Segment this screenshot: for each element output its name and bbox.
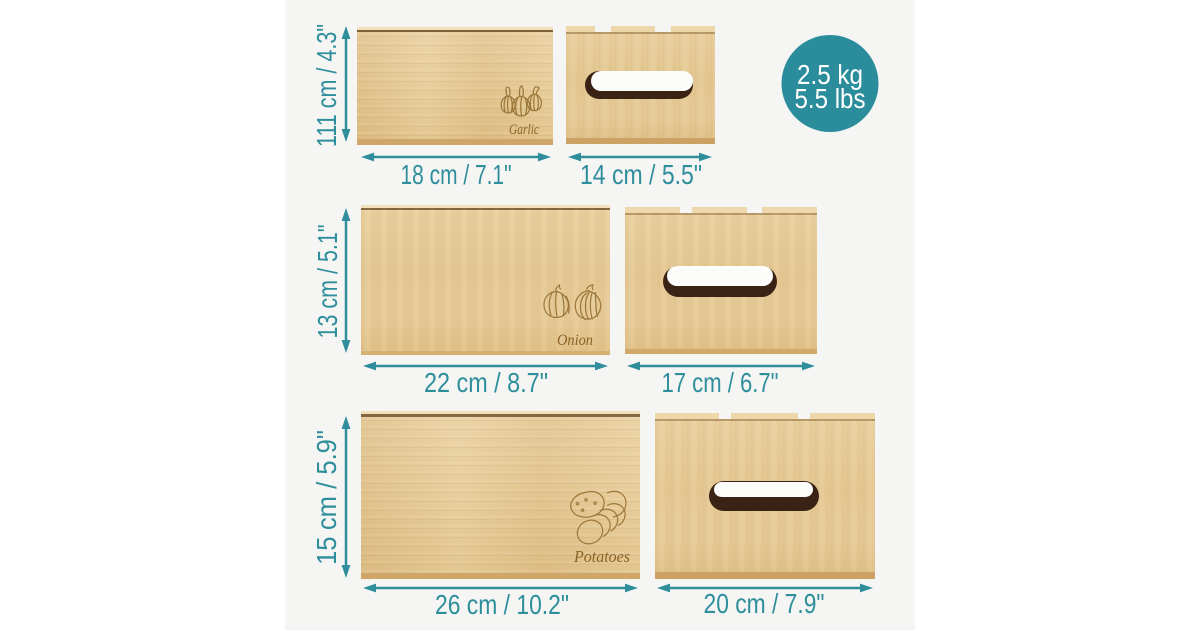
svg-text:15 cm / 5.9": 15 cm / 5.9" [311,430,342,565]
svg-text:20 cm / 7.9": 20 cm / 7.9" [704,588,825,619]
svg-text:111 cm / 4.3": 111 cm / 4.3" [311,24,342,147]
svg-text:22 cm / 8.7": 22 cm / 8.7" [424,367,548,398]
svg-text:17 cm / 6.7": 17 cm / 6.7" [662,367,779,398]
svg-text:14 cm / 5.5": 14 cm / 5.5" [580,159,702,190]
svg-text:13 cm / 5.1": 13 cm / 5.1" [312,225,343,339]
svg-text:5.5 lbs: 5.5 lbs [795,83,866,114]
svg-text:18 cm / 7.1": 18 cm / 7.1" [401,159,512,190]
svg-text:26 cm / 10.2": 26 cm / 10.2" [435,589,569,620]
